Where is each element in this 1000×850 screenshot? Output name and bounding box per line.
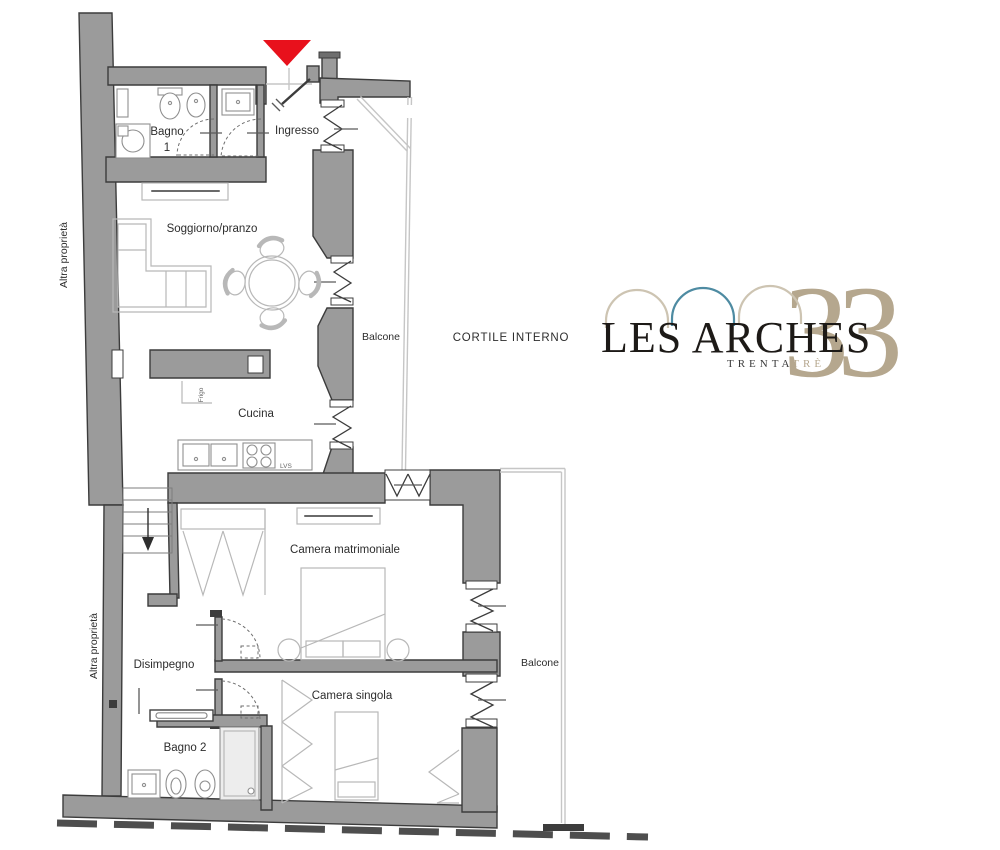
balcone-diagonal-a	[357, 99, 407, 151]
label-bagno1: Bagno	[150, 126, 183, 138]
label-bagno2: Bagno 2	[164, 742, 207, 754]
entrance-door	[266, 68, 312, 111]
balcone-diagonal-b	[361, 97, 411, 149]
toilet-icon	[160, 93, 180, 119]
wall-balcone-chunk1	[313, 150, 353, 258]
label-cucina: Cucina	[238, 408, 274, 420]
window-double-camera-matrimoniale	[385, 470, 430, 500]
entrance-marker-icon	[263, 40, 311, 66]
label-camera-matrimoniale: Camera matrimoniale	[290, 544, 400, 556]
label-altra-proprieta-upper: Altra proprietà	[58, 222, 70, 288]
label-altra-proprieta-lower: Altra proprietà	[88, 613, 100, 679]
label-camera-singola: Camera singola	[312, 690, 393, 702]
wall-disimpegno-jog	[148, 594, 177, 606]
door-camera-matrimoniale	[196, 619, 260, 658]
window-cs-right	[466, 674, 506, 727]
wall-left-upper	[79, 13, 123, 505]
left-wall-niche	[112, 350, 123, 378]
wall-cucina-bottom	[168, 473, 385, 503]
partition-bagno1-a	[210, 85, 217, 157]
bagno2-fixtures	[128, 727, 259, 800]
window-cucina	[314, 400, 353, 449]
label-balcone-top: Balcone	[362, 331, 400, 343]
fridge-nook	[182, 381, 212, 403]
flue-niche	[248, 356, 263, 373]
nightstand-icon	[387, 639, 409, 661]
wardrobe-icon	[282, 680, 312, 803]
balcone-rail-gap	[402, 105, 414, 118]
left-wall-stop	[109, 700, 117, 708]
wall-bagno2-right	[261, 726, 272, 810]
hinge-nub-upper	[210, 610, 222, 617]
wall-balcone-chunk2	[318, 308, 353, 400]
wall-cm-top-right	[430, 470, 500, 583]
wall-entry-stub	[322, 57, 337, 80]
entrance-door-leaf	[282, 79, 310, 104]
stairs	[123, 488, 172, 553]
wardrobe-icon	[181, 509, 265, 595]
bagno1-fixtures	[116, 88, 254, 158]
wall-left-lower	[102, 505, 123, 796]
logo-subtitle: TRENTATRÈ	[727, 358, 825, 370]
floor-plan-canvas: Bagno 1 Ingresso Soggiorno/pranzo Balcon…	[0, 0, 1000, 850]
bidet-icon	[187, 93, 205, 117]
soggiorno-furniture	[113, 183, 322, 330]
window-cm-right	[466, 581, 506, 632]
kitchen-sink-icon	[183, 444, 209, 466]
label-frigo: Frigo	[198, 387, 205, 402]
window-ingresso	[321, 100, 358, 152]
nightstand-icon	[278, 639, 300, 661]
wall-cm-left	[168, 503, 179, 598]
single-bed-icon	[335, 712, 378, 800]
double-bed-icon	[301, 568, 385, 660]
label-lvs: LVS	[280, 463, 292, 470]
dining-table-icon	[223, 235, 322, 330]
wall-top-right-L	[320, 78, 410, 103]
label-balcone-right: Balcone	[521, 657, 559, 669]
label-soggiorno: Soggiorno/pranzo	[167, 223, 258, 235]
column	[117, 89, 128, 117]
partition-disimpegno-cm	[215, 617, 222, 661]
label-bagno1-number: 1	[164, 142, 170, 154]
balcone-rail-foot	[543, 824, 584, 831]
wall-bagno1-soggiorno	[106, 157, 266, 182]
logo-wordmark: LES ARCHES	[601, 313, 871, 362]
label-ingresso: Ingresso	[275, 125, 319, 137]
floor-plan-page: Bagno 1 Ingresso Soggiorno/pranzo Balcon…	[0, 0, 1000, 850]
sliding-door-bagno2	[139, 688, 213, 721]
wall-entry-cap	[319, 52, 340, 58]
label-cortile-interno: CORTILE INTERNO	[453, 332, 570, 344]
wall-right-chunk6	[462, 728, 497, 812]
les-arches-logo: 33 LES ARCHES TRENTATRÈ	[601, 258, 898, 405]
wall-cm-bottom	[215, 660, 497, 672]
wardrobe-icon	[429, 750, 459, 803]
label-disimpegno: Disimpegno	[134, 659, 195, 671]
partition-bagno1-b	[257, 85, 264, 157]
